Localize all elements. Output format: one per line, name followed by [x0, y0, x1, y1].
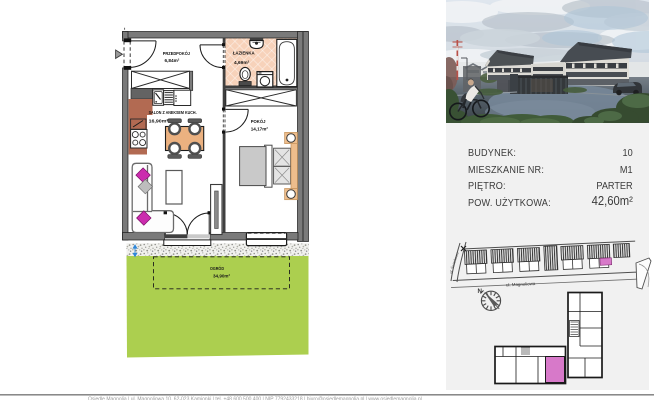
svg-text:ul. Świerkowa: ul. Świerkowa: [448, 251, 460, 274]
svg-text:Osiedle Magnolia | ul. Mag: Osiedle Magnolia | ul. Magnoliowa 10, 62…: [88, 397, 422, 400]
svg-text:ul. Magnoliowa: ul. Magnoliowa: [506, 281, 536, 287]
svg-text:16,90m²: 16,90m²: [149, 118, 169, 124]
svg-text:PRZEDPOKÓJ: PRZEDPOKÓJ: [163, 49, 190, 57]
svg-text:ŁAZIENKA: ŁAZIENKA: [233, 51, 255, 57]
svg-text:N: N: [478, 288, 483, 295]
svg-text:14,17m²: 14,17m²: [251, 126, 269, 132]
svg-text:SALON Z ANEKSEM KUCH.: SALON Z ANEKSEM KUCH.: [149, 110, 197, 116]
svg-text:34,90m²: 34,90m²: [213, 274, 230, 280]
svg-text:4,69m²: 4,69m²: [234, 60, 250, 66]
svg-text:POKÓJ: POKÓJ: [251, 117, 266, 125]
svg-text:6,84m²: 6,84m²: [165, 58, 180, 64]
